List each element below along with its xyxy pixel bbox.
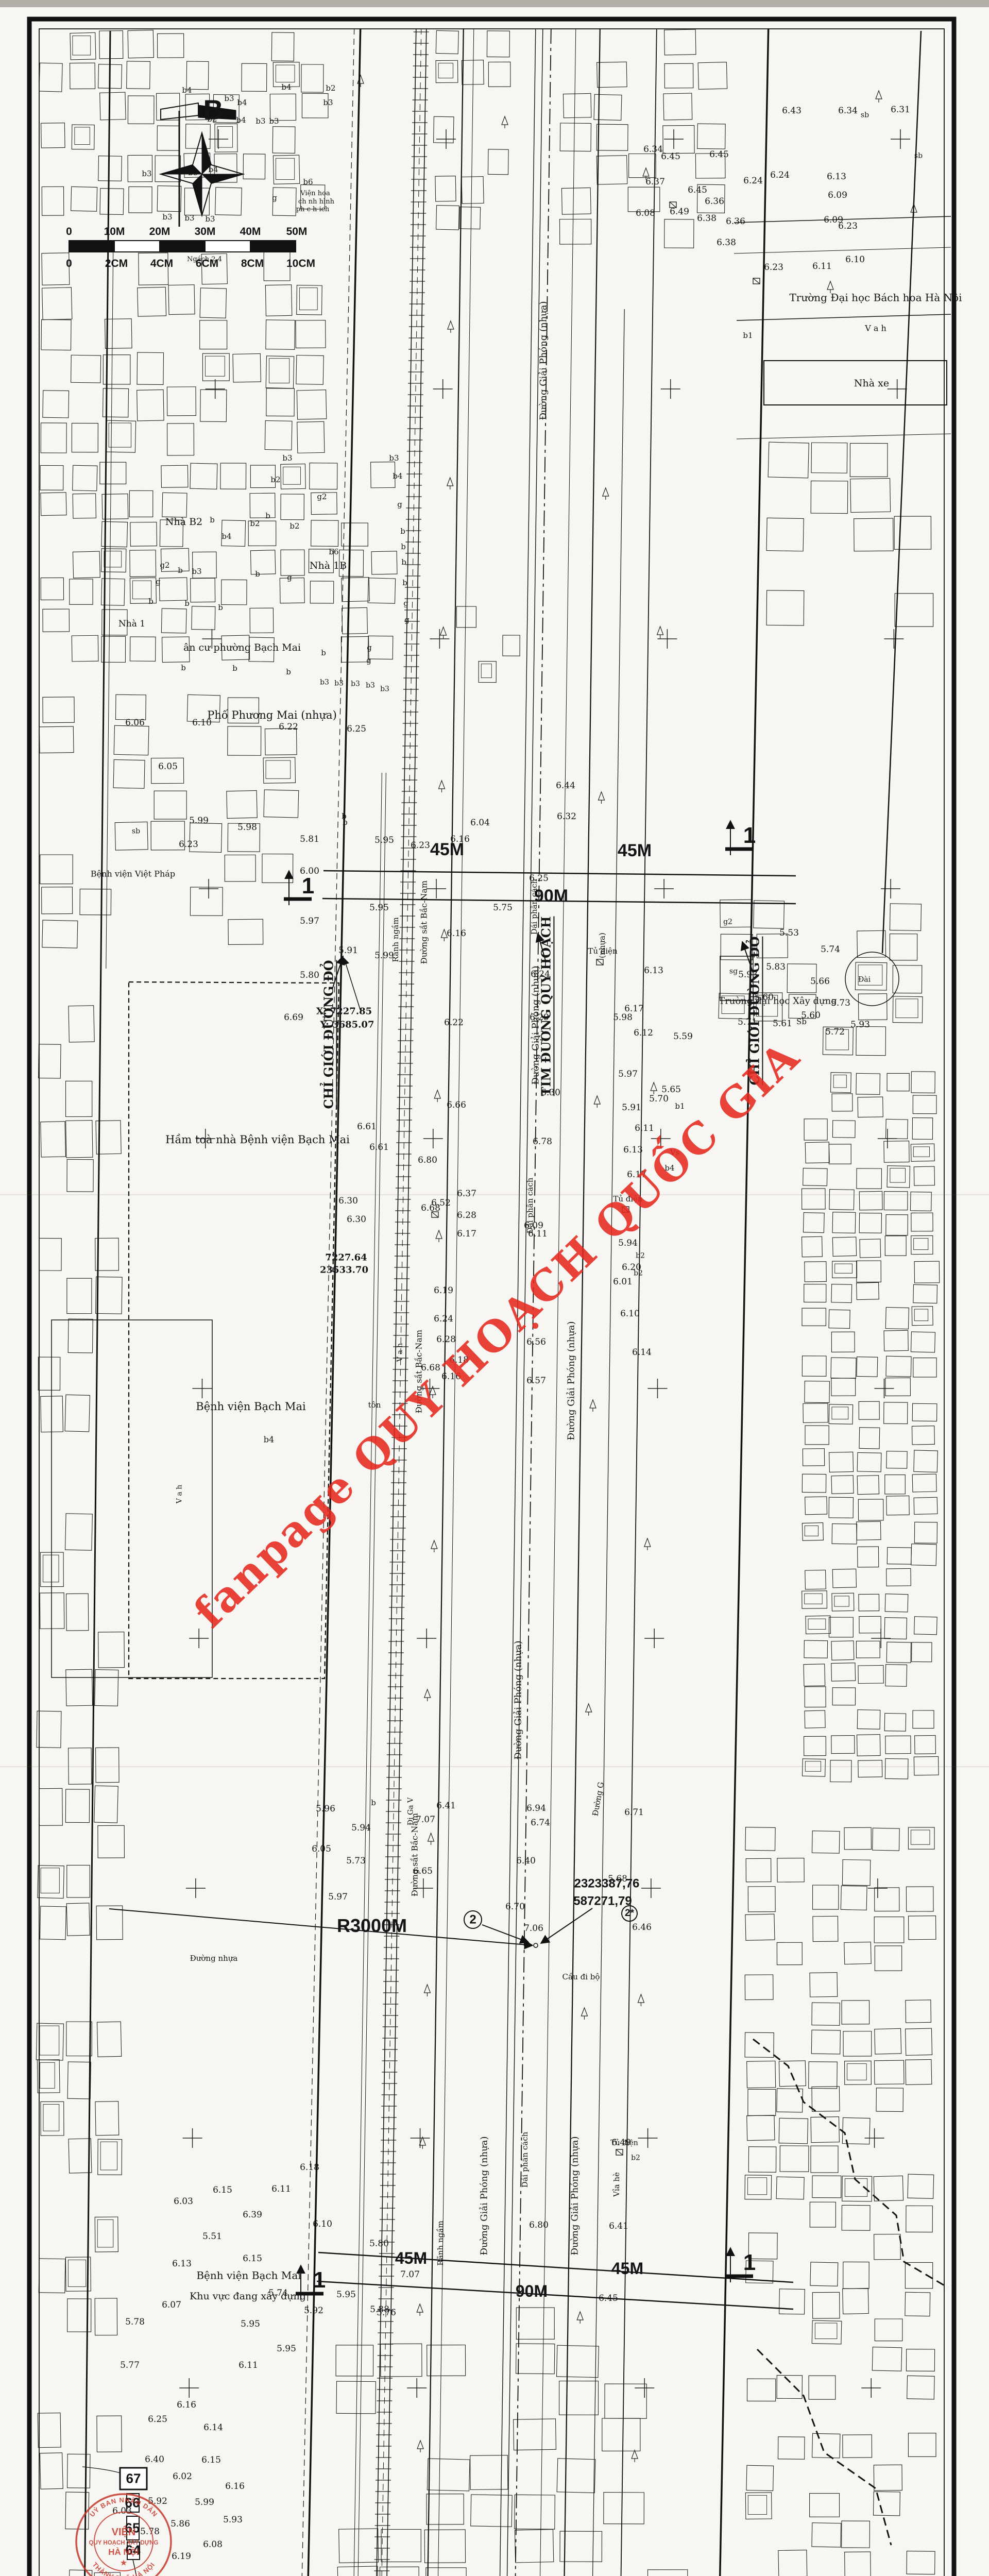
- map-label: b: [286, 668, 291, 676]
- spot-elevation: 6.23: [838, 222, 858, 231]
- spot-elevation: 6.80: [529, 2221, 549, 2230]
- map-label: b4: [182, 87, 192, 95]
- scale-bar-meter-label: 40M: [240, 226, 261, 238]
- map-label: b: [400, 528, 405, 536]
- map-label: Tủ điện: [588, 947, 617, 956]
- map-label: b3: [142, 170, 151, 178]
- map-label: Nhà B2: [165, 517, 202, 528]
- label-r3000m: R3000M: [337, 1916, 407, 1936]
- label-dh-bach-khoa: Trường Đại học Bách hoa Hà Nội: [789, 293, 962, 303]
- spot-elevation: 5.95: [241, 2320, 260, 2329]
- spot-elevation: 6.25: [529, 874, 549, 884]
- spot-elevation: 6.14: [203, 2424, 223, 2433]
- spot-elevation: 6.06: [125, 719, 145, 728]
- map-label: b: [265, 512, 270, 520]
- spot-elevation: 6.45: [709, 150, 729, 160]
- map-label: V a h: [865, 325, 886, 333]
- map-label: b: [178, 567, 183, 575]
- scale-bar-cm-label: 2CM: [105, 258, 128, 269]
- map-label: b: [402, 579, 407, 587]
- spot-elevation: 6.70: [505, 1903, 525, 1912]
- label-ham-toa-nha: Hầm toà nhà Bệnh viện Bạch Mai: [165, 1134, 350, 1145]
- spot-elevation: 5.97: [328, 1893, 348, 1902]
- spot-elevation: 6.15: [243, 2255, 262, 2264]
- map-label: b3: [323, 99, 333, 107]
- map-label: b3: [334, 680, 344, 688]
- spot-elevation: 6.05: [312, 1845, 331, 1854]
- map-label: b4: [221, 533, 231, 541]
- map-label: ph c h ich: [296, 206, 330, 213]
- map-label: b: [218, 604, 223, 612]
- scale-bar-cm-label: 0: [66, 258, 72, 269]
- spot-elevation: 6.13: [623, 1146, 643, 1155]
- spot-elevation: 6.22: [444, 1019, 464, 1028]
- scale-bar-meter-label: 20M: [149, 226, 170, 238]
- spot-elevation: 6.25: [347, 725, 366, 734]
- spot-elevation: 6.00: [300, 867, 319, 876]
- spot-elevation: 5.94: [351, 1824, 371, 1833]
- spot-elevation: 6.37: [645, 178, 665, 187]
- spot-elevation: 1: [313, 2268, 326, 2292]
- spot-elevation: 6.40: [516, 1857, 536, 1866]
- spot-elevation: 6.34: [838, 107, 858, 116]
- map-label: Bệnh viện Việt Pháp: [91, 870, 175, 879]
- spot-elevation: 6.38: [697, 214, 717, 224]
- spot-elevation: 5.73: [831, 999, 850, 1008]
- spot-elevation: 5.59: [673, 1032, 693, 1042]
- spot-elevation: 7.07: [416, 1816, 435, 1825]
- scale-bar-cm-label: 6CM: [196, 258, 218, 269]
- map-label: b: [342, 812, 347, 821]
- map-label: g: [287, 574, 292, 582]
- spot-elevation: 1: [743, 2251, 756, 2275]
- spot-elevation: 6.24: [434, 1315, 453, 1324]
- spot-elevation: 5.61: [773, 1020, 792, 1029]
- spot-elevation: 6.40: [145, 2455, 164, 2465]
- map-label: g: [403, 600, 408, 608]
- spot-elevation: 5.60: [801, 1011, 821, 1021]
- sheet-number: 67: [126, 2471, 141, 2485]
- map-label: Đường Giải Phóng (nhựa): [532, 965, 541, 1084]
- map-label: Dải phân cách: [531, 879, 539, 935]
- map-label: b4: [393, 472, 402, 481]
- map-label: b3: [162, 213, 172, 222]
- map-label: b4: [236, 116, 246, 125]
- spot-elevation: 6.13: [827, 173, 846, 182]
- map-label: Đường Giải Phóng (nhựa): [567, 1321, 577, 1440]
- map-label: Đài: [858, 976, 871, 984]
- spot-elevation: 6.15: [201, 2456, 221, 2465]
- map-label: b3: [282, 454, 292, 463]
- coordinate-x: 2323387,76: [574, 1877, 640, 1890]
- map-label: V a h: [176, 1485, 184, 1503]
- spot-elevation: 6.08: [203, 2540, 223, 2550]
- spot-elevation: 6.80: [418, 1156, 437, 1165]
- map-label: b2: [250, 520, 260, 528]
- spot-elevation: 6.16: [450, 835, 470, 844]
- spot-elevation: 5.66: [810, 977, 830, 987]
- spot-elevation: 6.10: [192, 719, 212, 728]
- spot-elevation: 6.44: [556, 782, 575, 791]
- map-label: Đường G: [591, 1782, 605, 1817]
- spot-elevation: 5.71: [738, 1018, 757, 1027]
- spot-elevation: 6.30: [541, 1089, 560, 1098]
- ubnd-line2: QUY HOẠCH XÂY DỰNG: [89, 2539, 159, 2546]
- spot-elevation: 6.23: [764, 263, 783, 273]
- map-label: b3: [380, 686, 389, 693]
- scale-bar-meter-label: 50M: [286, 226, 308, 238]
- spot-elevation: 5.72: [825, 1028, 845, 1037]
- map-label: b3: [351, 681, 360, 688]
- spot-elevation: 6.11: [238, 2361, 258, 2370]
- spot-elevation: 6.11: [635, 1124, 654, 1133]
- spot-elevation: 6.09: [828, 191, 847, 200]
- spot-elevation: 6.36: [705, 197, 724, 207]
- spot-elevation: 5.83: [766, 963, 786, 972]
- spot-elevation: 6.25: [148, 2415, 167, 2425]
- spot-elevation: 5.98: [237, 823, 257, 833]
- spot-elevation: 5.74: [821, 945, 840, 955]
- spot-elevation: 7.07: [400, 2270, 420, 2280]
- map-label: ân cư phường Bạch Mai: [183, 643, 301, 653]
- map-label: sb: [132, 828, 140, 836]
- spot-elevation: 6.74: [531, 1819, 550, 1828]
- map-label: g2: [317, 493, 327, 501]
- map-label: b2: [289, 522, 299, 531]
- spot-elevation: 6.39: [243, 2211, 262, 2220]
- spot-elevation: 5.76: [377, 2309, 396, 2318]
- spot-elevation: 5.97: [300, 917, 319, 926]
- map-label: b: [401, 558, 406, 567]
- map-label: Cầu đi bộ: [562, 1973, 600, 1981]
- map-label: b2: [636, 1252, 645, 1260]
- spot-elevation: 6.49: [670, 208, 689, 217]
- map-label: Đường Giải Phóng (nhựa): [539, 301, 549, 420]
- spot-elevation: 6.38: [717, 239, 736, 248]
- spot-elevation: 5.93: [223, 2516, 243, 2525]
- map-label: b3: [320, 679, 329, 687]
- spot-elevation: 5.93: [850, 1021, 870, 1030]
- map-labels-layer: B45M90M45M45M90M45MR3000M111122*2323387,…: [0, 0, 989, 2576]
- spot-elevation: 5.96: [316, 1805, 335, 1814]
- spot-elevation: 6.11: [528, 1230, 548, 1239]
- map-label: Khu vực đang xây dựng: [190, 2292, 306, 2302]
- spot-elevation: 6.24: [531, 970, 550, 979]
- map-label: Rãnh ngầm: [437, 2221, 445, 2265]
- spot-elevation: 5.95: [374, 836, 394, 845]
- spot-elevation: 6.19: [434, 1286, 453, 1296]
- map-label: Đường Giải Phóng (nhựa): [571, 2136, 581, 2255]
- map-label: b4: [264, 1436, 274, 1445]
- spot-elevation: 6.11: [812, 262, 832, 272]
- spot-elevation: 5.91: [622, 1104, 641, 1113]
- map-label: Nhà 1: [118, 620, 145, 629]
- map-label: b: [255, 570, 260, 579]
- spot-elevation: 6.12: [634, 1029, 653, 1038]
- svg-text:UỶ BAN NHÂN DÂN: UỶ BAN NHÂN DÂN: [88, 2496, 159, 2518]
- map-label: Dải phân cách: [521, 2132, 530, 2188]
- spot-elevation: 6.29: [530, 1013, 549, 1023]
- spot-elevation: 6.10: [620, 1310, 640, 1319]
- label-dh-xay-dung: Trường đại học Xây dựng: [719, 997, 837, 1007]
- map-label: g2: [160, 562, 169, 570]
- spot-elevation: 6.13: [644, 967, 663, 976]
- spot-elevation: 6.08: [636, 209, 655, 218]
- scale-bar-cm-label: 8CM: [241, 258, 264, 269]
- map-label: Đường nhựa: [190, 1955, 238, 1963]
- map-label: Phố Phương Mai (nhựa): [207, 709, 337, 721]
- map-label: Bệnh viện Bạch Mai: [196, 2270, 301, 2281]
- spot-elevation: 5.80: [369, 2240, 389, 2249]
- map-label: b4: [281, 83, 291, 92]
- spot-elevation: 6.68: [421, 1204, 440, 1213]
- map-label: b: [232, 665, 237, 673]
- map-label: b6: [303, 178, 313, 187]
- scale-bar-meter-label: 30M: [195, 226, 216, 238]
- spot-elevation: 5.97: [618, 1070, 638, 1079]
- spot-elevation: 6.36: [726, 217, 745, 227]
- map-label: b: [184, 600, 190, 608]
- spot-elevation: 6.14: [632, 1348, 652, 1358]
- spot-elevation: 6.24: [770, 171, 790, 180]
- scale-bar-meter-label: 0: [66, 226, 72, 238]
- map-label: g: [397, 501, 402, 509]
- map-label: Vỉa hè: [613, 2172, 621, 2197]
- spot-elevation: 6.10: [845, 256, 865, 265]
- map-label: g2: [723, 919, 732, 926]
- spot-elevation: 5.70: [649, 1095, 669, 1104]
- spot-elevation: 6.04: [470, 819, 490, 828]
- map-label: b4: [208, 166, 218, 174]
- map-label: b1: [743, 332, 753, 340]
- spot-elevation: 6.28: [457, 1211, 476, 1221]
- spot-elevation: 45M: [611, 2260, 643, 2278]
- spot-elevation: 6.78: [533, 1138, 552, 1147]
- map-label: Đường sắt Bắc-Nam: [420, 880, 429, 964]
- label-benh-vien-bach-mai: Bệnh viện Bạch Mai: [196, 1401, 305, 1412]
- label-chi-gioi-left: CHỈ GIỚI ĐƯỜNG ĐỎ: [322, 960, 337, 1109]
- spot-elevation: 5.95: [369, 904, 389, 913]
- spot-elevation: 1: [302, 874, 314, 898]
- spot-elevation: 6.01: [613, 1278, 633, 1287]
- spot-elevation: 6.45: [661, 152, 680, 162]
- spot-elevation: 6.34: [643, 145, 663, 155]
- map-label: b2: [326, 84, 335, 93]
- spot-elevation: 6.66: [447, 1101, 466, 1110]
- spot-elevation: 6.61: [369, 1143, 389, 1153]
- map-label: Đường sắt Bắc-Nam: [411, 1813, 420, 1896]
- spot-elevation: 5.51: [202, 2232, 222, 2242]
- spot-elevation: 23533.70: [320, 1266, 368, 1276]
- map-label: b2: [207, 115, 217, 124]
- spot-elevation: 5.80: [300, 971, 319, 980]
- spot-elevation: 6.18: [300, 2163, 319, 2173]
- map-label: sb: [861, 112, 869, 120]
- spot-elevation: 5.75: [493, 904, 513, 913]
- spot-elevation: 5.53: [779, 929, 799, 938]
- map-label: Đường Giải Phóng (nhựa): [480, 2136, 490, 2255]
- map-label: b1: [675, 1103, 685, 1111]
- spot-elevation: 6.61: [357, 1123, 377, 1132]
- spot-elevation: 5.99: [189, 817, 209, 826]
- spot-elevation: 5.68: [608, 1875, 627, 1884]
- spot-elevation: 6.16: [447, 929, 466, 939]
- spot-elevation: 5.81: [300, 835, 319, 844]
- map-label: b3: [255, 117, 265, 126]
- spot-elevation: 6.05: [158, 762, 178, 772]
- map-label: Đi Ga V: [407, 1798, 415, 1825]
- map-label: b2: [270, 476, 280, 484]
- map-label: b3: [192, 568, 201, 576]
- spot-elevation: 2*: [625, 1908, 634, 1919]
- map-label: b3: [389, 454, 399, 463]
- map-label: b: [321, 649, 326, 657]
- spot-elevation: 6.16: [177, 2401, 196, 2410]
- spot-elevation: 6.24: [743, 177, 763, 186]
- spot-elevation: 6.46: [632, 1923, 652, 1933]
- spot-elevation: 6.20: [622, 1263, 641, 1273]
- spot-elevation: 6.23: [179, 840, 198, 850]
- spot-elevation: 6.13: [172, 2260, 192, 2269]
- spot-elevation: 1: [743, 824, 756, 848]
- spot-elevation: 6.02: [173, 2472, 192, 2482]
- ubnd-line1: VIỆN: [112, 2526, 136, 2538]
- spot-elevation: 6.22: [279, 723, 298, 732]
- spot-elevation: 6.37: [457, 1190, 476, 1199]
- spot-elevation: 6.56: [526, 1338, 546, 1347]
- spot-elevation: 6.03: [174, 2197, 193, 2207]
- spot-elevation: 6.30: [338, 1197, 358, 1206]
- spot-elevation: 6.32: [557, 812, 576, 822]
- ubnd-line3: HÀ NỘI: [108, 2547, 139, 2557]
- map-label: b3: [205, 215, 215, 224]
- map-label: V a h: [397, 1343, 404, 1362]
- map-label: Nhà 1B: [310, 561, 347, 571]
- spot-elevation: 6.23: [411, 841, 430, 851]
- spot-elevation: 6.16: [225, 2482, 245, 2492]
- map-sheet: B45M90M45M45M90M45MR3000M111122*2323387,…: [0, 0, 989, 2576]
- spot-elevation: 45M: [395, 2250, 427, 2267]
- spot-elevation: 6.65: [413, 1867, 433, 1876]
- map-label: b: [401, 543, 406, 551]
- spot-elevation: 6.71: [624, 1808, 644, 1818]
- spot-elevation: 6.10: [313, 2220, 332, 2229]
- spot-elevation: 5.60: [754, 993, 774, 1003]
- ubnd-star-icon: ★: [121, 2558, 127, 2567]
- scale-bar-cm-label: 4CM: [150, 258, 173, 269]
- spot-elevation: 90M: [534, 887, 568, 906]
- map-label: g: [367, 644, 372, 652]
- map-label: b6: [329, 548, 338, 556]
- spot-elevation: 6.45: [688, 186, 707, 195]
- spot-elevation: 6.15: [213, 2186, 232, 2195]
- spot-elevation: 5.99: [195, 2498, 214, 2507]
- spot-elevation: 6.69: [284, 1013, 303, 1023]
- spot-elevation: 6.17: [457, 1230, 476, 1239]
- spot-elevation: 2: [469, 1913, 476, 1926]
- map-label: b2: [631, 2155, 640, 2162]
- spot-elevation: 5.99: [374, 952, 394, 961]
- map-label: Viện hoa: [300, 190, 330, 197]
- map-label: b: [181, 664, 186, 672]
- spot-elevation: 5.91: [338, 946, 358, 956]
- label-tim-duong: TIM ĐƯỜNG QUY HOẠCH: [539, 917, 554, 1096]
- spot-elevation: 6.07: [162, 2301, 181, 2310]
- spot-elevation: 5.77: [120, 2361, 140, 2370]
- map-label: tôn: [368, 1401, 381, 1410]
- spot-elevation: 5.93: [738, 971, 758, 980]
- spot-elevation: 6.11: [271, 2185, 291, 2194]
- map-label: b3: [184, 214, 194, 223]
- map-label: b3: [188, 169, 198, 177]
- map-label: b3: [269, 117, 279, 126]
- spot-elevation: 45M: [618, 842, 652, 860]
- map-label: sb: [914, 152, 923, 160]
- spot-elevation: 6.41: [609, 2222, 628, 2231]
- spot-elevation: 90M: [516, 2283, 548, 2300]
- map-label: ch nh hình: [298, 198, 334, 206]
- spot-elevation: 6.94: [526, 1804, 546, 1814]
- map-label: b3: [366, 682, 375, 690]
- map-label: Đường Giải Phóng (nhựa): [514, 1640, 524, 1759]
- map-label: Nhà xe: [854, 379, 889, 389]
- spot-elevation: 6.45: [599, 2294, 618, 2303]
- spot-elevation: 5.78: [125, 2318, 145, 2327]
- map-label: g: [366, 657, 371, 665]
- map-label: sg: [729, 968, 738, 976]
- spot-elevation: 5.98: [613, 1013, 633, 1023]
- spot-elevation: 6.49: [611, 2139, 631, 2148]
- ubnd-ring-top: UỶ BAN NHÂN DÂN: [88, 2496, 159, 2518]
- spot-elevation: 6.30: [347, 1215, 366, 1225]
- map-label: b3: [224, 95, 234, 103]
- ubnd-stamp: UỶ BAN NHÂN DÂN THÀNH PHỐ HÀ NỘI VIỆN QU…: [72, 2490, 175, 2576]
- map-label: g: [156, 578, 161, 586]
- scale-bar-cm-label: 10CM: [286, 258, 315, 269]
- spot-elevation: 6.43: [782, 107, 802, 116]
- map-label: b: [210, 516, 215, 524]
- map-label: g: [404, 616, 410, 624]
- spot-elevation: 6.31: [891, 106, 910, 115]
- coordinate-y: 587271,79: [573, 1894, 632, 1907]
- spot-elevation: 6.57: [526, 1377, 546, 1386]
- spot-elevation: 5.73: [346, 1857, 366, 1866]
- map-label: b4: [237, 99, 247, 107]
- map-label: b: [148, 598, 154, 606]
- spot-elevation: 5.74: [268, 2289, 288, 2298]
- map-label: b: [371, 1799, 376, 1807]
- scale-bar-meter-label: 10M: [104, 226, 125, 238]
- spot-elevation: 5.92: [304, 2307, 323, 2316]
- spot-elevation: 5.95: [277, 2345, 296, 2354]
- map-label: g: [272, 194, 277, 202]
- spot-elevation: 7227.64: [325, 1253, 367, 1263]
- spot-elevation: 6.41: [436, 1802, 456, 1811]
- spot-elevation: 5.95: [336, 2291, 356, 2300]
- spot-elevation: 7.06: [524, 1924, 543, 1934]
